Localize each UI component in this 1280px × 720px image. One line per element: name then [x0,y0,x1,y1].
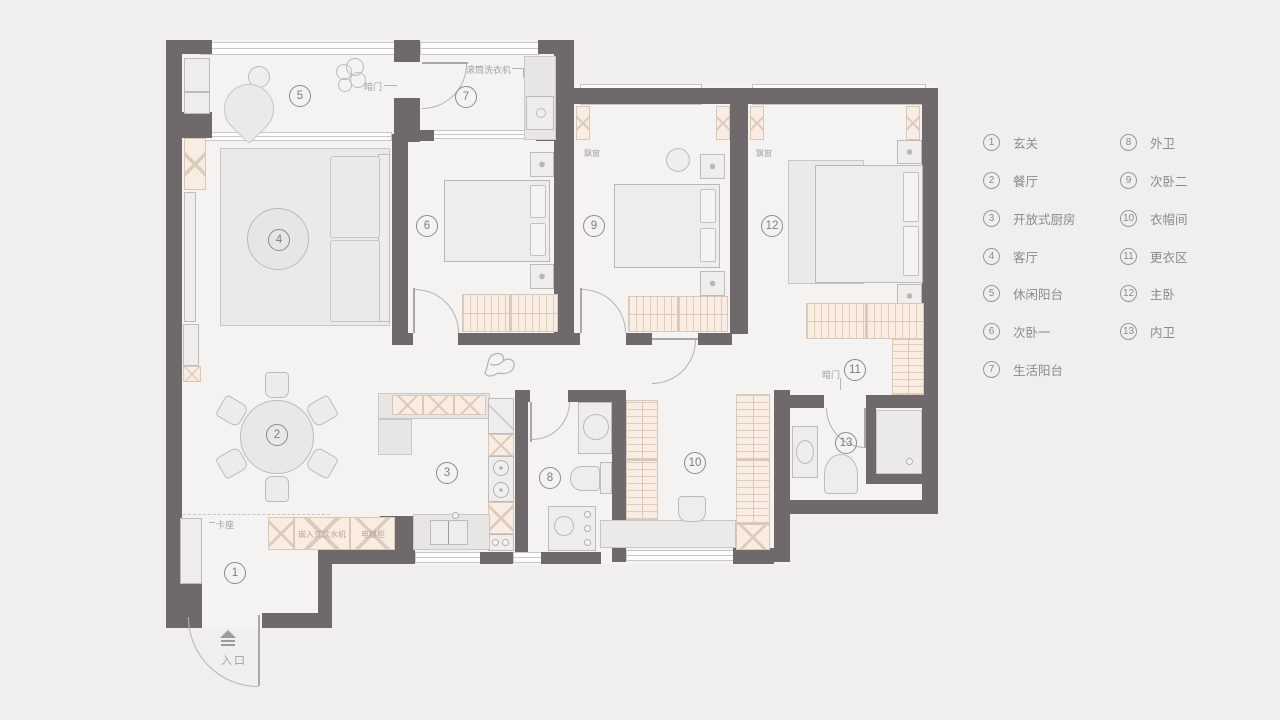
sink-divider [448,521,449,544]
legend-label: 生活阳台 [1013,360,1063,379]
bench-label: 卡座 [216,518,234,531]
legend-num: 8 [1120,134,1137,151]
entrance-arrow-icon [220,630,236,638]
legend-num: 1 [983,134,1000,151]
room-marker-7: 7 [455,86,477,108]
dining-chair [265,476,289,502]
pillow [530,185,546,218]
legend-item-3: 3开放式厨房 [983,209,1076,227]
sofa-seat [330,156,380,238]
toilet13 [824,454,858,494]
bench-label-connector [209,522,215,523]
room-marker-2: 2 [266,424,288,446]
wardrobe-cloak-left [626,400,658,460]
small-table [666,148,690,172]
sideboard-cell [268,517,294,550]
legend-num: 11 [1120,248,1137,265]
tv-console [184,192,196,322]
basin13-bowl [796,440,814,464]
legend-item-4: 4客厅 [983,247,1038,265]
wardrobe-cloak-left [626,460,658,520]
legend-num: 7 [983,361,1000,378]
wardrobe-bed2 [678,296,728,332]
wardrobe-bed1 [510,294,558,332]
legend-label: 客厅 [1013,247,1038,266]
wardrobe-dressing [892,339,924,395]
wall [774,390,790,562]
floor-plan-page: { "legend": { "items": [ {"num": "1", "l… [0,0,1280,720]
room-marker-10: 10 [684,452,706,474]
pillow [700,228,716,262]
tall-cabinet [488,434,514,456]
faucet [452,512,459,519]
bay-window-label-2: 飘窗 [756,148,772,159]
wall [574,88,938,104]
knob [502,539,509,546]
hidden-door-connector-1 [384,85,397,86]
wall [730,104,748,334]
kitchen-sink [430,520,468,545]
drain [536,108,546,118]
legend-item-1: 1玄关 [983,133,1038,151]
bay-cabinet [576,106,590,140]
water-dispenser-label: 嵌入式饮水机 [296,529,348,540]
knob [492,539,499,546]
cat-sketch [480,346,520,380]
knob [584,511,591,518]
knob [584,539,591,546]
entrance-label: 入口 [221,652,247,668]
bay-cabinet [716,106,730,140]
room-marker-11: 11 [844,359,866,381]
nightstand [700,154,725,179]
kitchen-counter-arm [378,419,412,455]
legend-num: 5 [983,285,1000,302]
sofa-seat [330,240,380,322]
wall [700,88,752,104]
window-bench [600,520,736,548]
window-kitchen-south [415,552,481,563]
kitchen-wall-cabinet [454,395,486,415]
stool [678,496,706,522]
wall [515,390,530,402]
wall [480,552,513,564]
legend-label: 玄关 [1013,133,1038,152]
wardrobe-dressing [806,303,866,339]
floor-plan-canvas: 1 2 3 4 5 6 7 8 9 10 11 12 13 入口 卡座 暗门 滚… [0,0,1280,720]
legend-item-13: 13内卫 [1120,322,1175,340]
wardrobe-bed1 [462,294,510,332]
legend-item-5: 5休闲阳台 [983,284,1063,302]
room-marker-4: 4 [268,229,290,251]
room-marker-8: 8 [539,467,561,489]
burner [493,460,509,476]
legend-item-7: 7生活阳台 [983,360,1063,378]
legend-label: 更衣区 [1150,247,1188,266]
mask-top-right [574,38,938,84]
legend-num: 6 [983,323,1000,340]
wall [515,390,528,552]
balcony-window-top-left [200,42,396,55]
bay-cabinet [906,106,920,140]
kitchen-wall-cabinet [392,395,423,415]
entrance-arrow-bar [221,640,235,642]
cabinet [183,366,201,382]
washer-connector [523,68,524,78]
legend-item-9: 9次卧二 [1120,171,1188,189]
wardrobe-cloak-right [736,394,770,460]
wall [774,500,938,514]
shower-drain [906,458,913,465]
cabinet [184,138,206,190]
wardrobe-dressing [866,303,924,339]
legend-num: 10 [1120,210,1137,227]
ceiling-break-line [183,514,330,515]
legend-label: 衣帽间 [1150,209,1188,228]
wall [866,395,938,408]
washer-nook [184,92,210,114]
room-marker-12: 12 [761,215,783,237]
wall [392,134,408,334]
legend-item-8: 8外卫 [1120,133,1175,151]
nightstand [700,271,725,296]
room-marker-5: 5 [289,85,311,107]
legend-num: 12 [1120,285,1137,302]
room-marker-13: 13 [835,432,857,454]
nightstand [897,140,922,164]
wall [733,548,774,564]
room-marker-1: 1 [224,562,246,584]
hidden-door-label-1: 暗门 [364,80,382,93]
bay-window-label-1: 飘窗 [584,148,600,159]
legend-num: 4 [983,248,1000,265]
legend-label: 休闲阳台 [1013,284,1063,303]
legend-label: 餐厅 [1013,171,1038,190]
round-basin [583,414,609,440]
burner [493,482,509,498]
wall [394,40,420,62]
wall [394,130,434,141]
wardrobe-bed2 [628,296,678,332]
legend-label: 内卫 [1150,322,1175,341]
wall [182,112,212,138]
legend-label: 次卧一 [1013,322,1051,341]
toilet-bowl [570,466,600,491]
hidden-door-label-2: 暗门 [822,368,840,381]
legend-label: 开放式厨房 [1013,209,1076,228]
wall [922,104,938,514]
legend-item-11: 11更衣区 [1120,247,1188,265]
legend-item-2: 2餐厅 [983,171,1038,189]
knob [584,525,591,532]
wall [330,550,415,564]
wall [698,333,732,345]
legend-label: 外卫 [1150,133,1175,152]
entry-door-leaf [258,615,260,686]
legend-num: 9 [1120,172,1137,189]
legend-label: 次卧二 [1150,171,1188,190]
wall [541,552,601,564]
bay-cabinet [750,106,764,140]
wall [392,333,413,345]
pillow [903,226,919,276]
wall [866,474,922,484]
wall [554,40,574,335]
appliance-cabinet-label: 电器柜 [352,529,394,540]
entry-bench [180,518,202,584]
fridge [488,398,514,434]
legend-label: 主卧 [1150,284,1175,303]
vanity-bowl [554,516,574,536]
hidden-door-connector-2 [840,378,841,390]
wall [458,333,580,345]
pillow [530,223,546,256]
balcony-window-top-mid [420,42,540,55]
wardrobe-cloak-right [736,460,770,524]
legend-num: 2 [983,172,1000,189]
slider-balcony-bed1 [432,130,538,139]
room-marker-3: 3 [436,462,458,484]
shower [876,410,922,474]
pillow [903,172,919,222]
dining-chair [265,372,289,398]
hall-cabinet [184,58,210,92]
wall [626,333,652,345]
entrance-arrow-bar [221,644,235,646]
wall [262,613,332,628]
mask-bottom-right [790,514,938,574]
pillow [700,189,716,223]
cabinet [183,324,199,366]
wall [866,408,876,482]
kitchen-wall-cabinet [423,395,454,415]
window-bath8-south [513,552,543,563]
wall [774,395,824,408]
window-cloakroom-south [626,550,734,561]
legend-item-6: 6次卧一 [983,322,1051,340]
wardrobe-corner [736,524,770,550]
room-marker-6: 6 [416,215,438,237]
legend-num: 13 [1120,323,1137,340]
slider-balcony-living [184,132,392,141]
toilet-tank [600,462,612,494]
legend-item-10: 10衣帽间 [1120,209,1188,227]
nightstand [530,152,554,177]
legend-item-12: 12主卧 [1120,284,1175,302]
legend-num: 3 [983,210,1000,227]
washing-machine-label: 滚筒洗衣机 [466,63,511,76]
tall-cabinet [488,502,514,534]
nightstand [530,264,554,289]
room-marker-9: 9 [583,215,605,237]
